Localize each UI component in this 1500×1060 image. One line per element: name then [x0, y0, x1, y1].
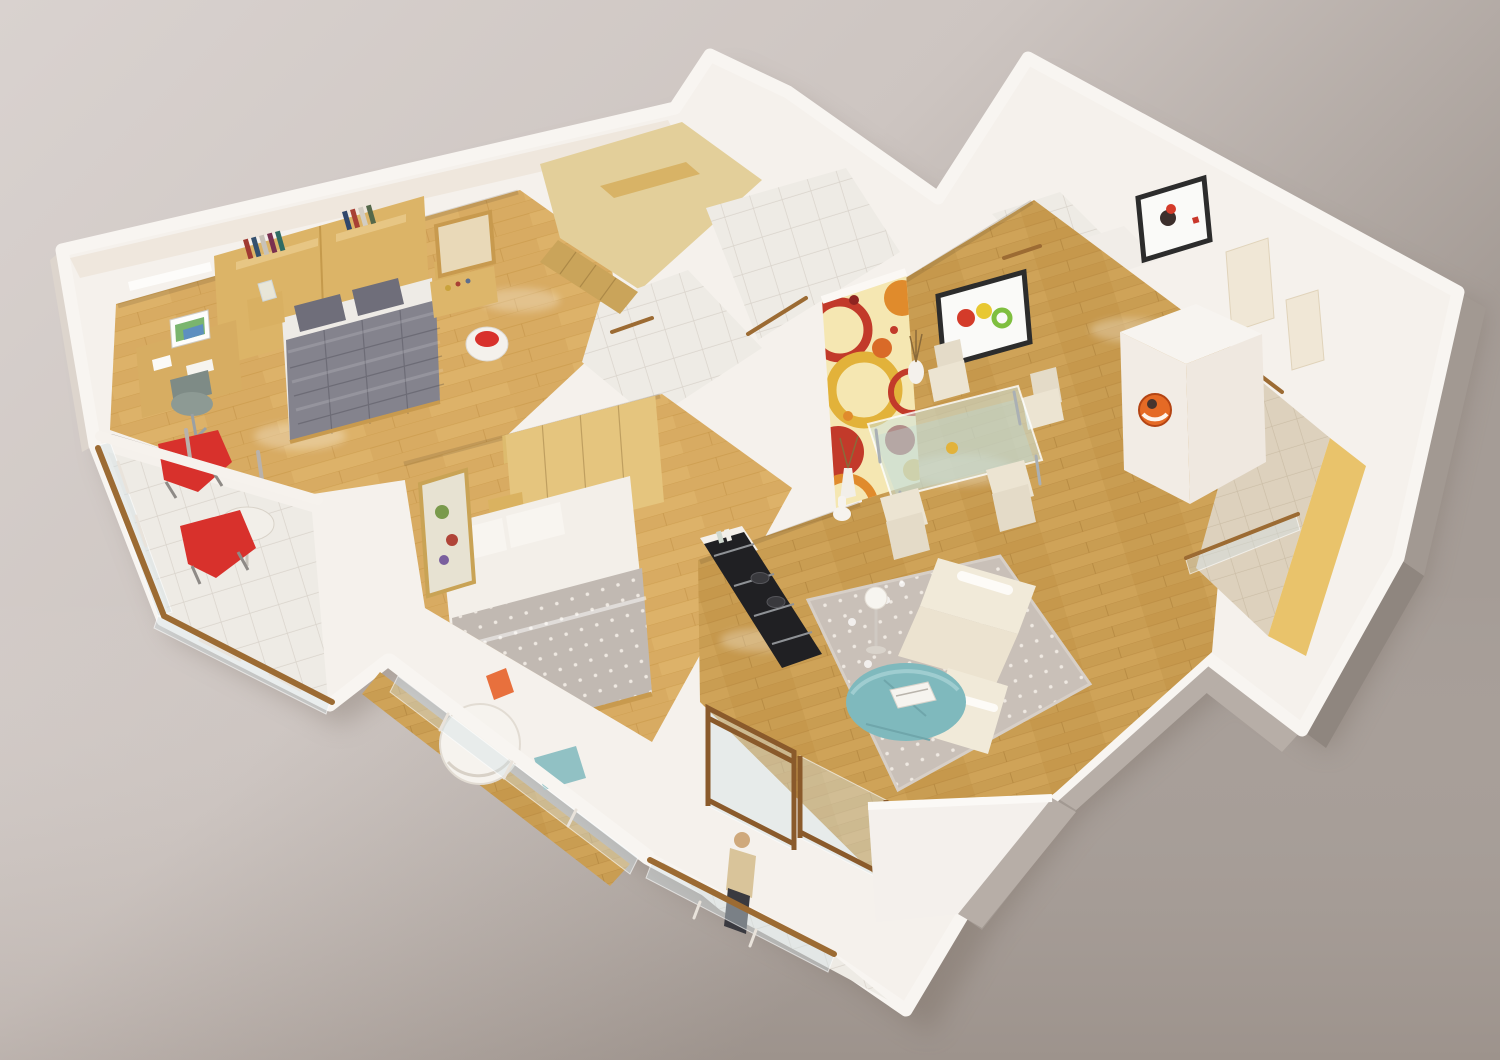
tall-cabinet	[1120, 304, 1266, 504]
cooktop-burner	[751, 573, 769, 584]
table-flowers	[946, 442, 958, 454]
trinket	[466, 279, 471, 284]
cooktop-burner	[767, 597, 785, 608]
office-chair-seat	[171, 392, 213, 416]
leaning-artwork	[420, 470, 474, 596]
trinket	[456, 282, 461, 287]
stool-red-top	[475, 331, 499, 347]
wall-clock	[1139, 394, 1171, 426]
trinket	[445, 285, 451, 291]
interior-door	[1226, 238, 1274, 332]
dressing-table	[430, 212, 498, 318]
teal-ottoman-table	[846, 663, 966, 741]
drum-stool	[466, 327, 508, 361]
render-canvas	[0, 0, 1500, 1060]
bird-crest	[1166, 204, 1176, 214]
interior-door	[1286, 290, 1324, 370]
floor-plan-render	[0, 0, 1500, 1060]
